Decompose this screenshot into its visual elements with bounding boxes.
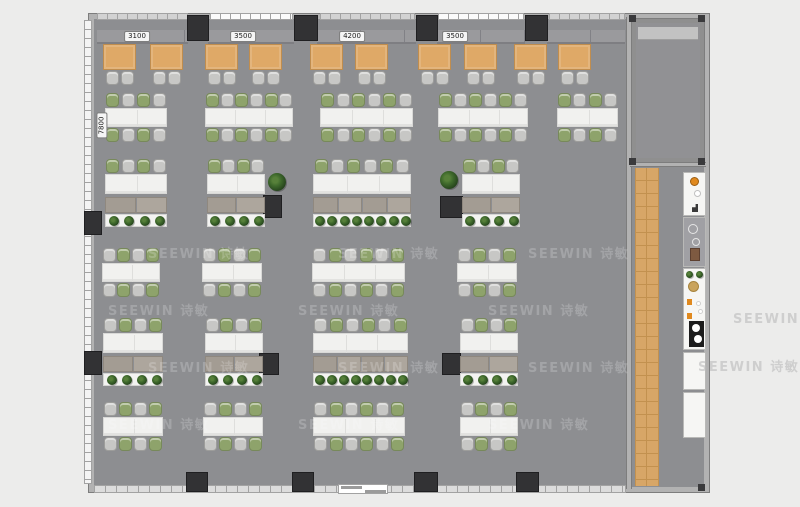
chair <box>347 159 360 173</box>
chair <box>153 93 166 107</box>
chair <box>221 128 234 142</box>
window-band-top <box>549 13 625 20</box>
chair <box>119 437 132 451</box>
chair <box>122 93 135 107</box>
planter-box <box>207 214 265 227</box>
chair <box>506 159 519 173</box>
chair <box>329 283 342 297</box>
chair <box>117 248 130 262</box>
plant <box>122 375 132 385</box>
chair <box>454 128 467 142</box>
workstation-table <box>205 333 263 353</box>
table-seam <box>383 110 384 127</box>
chair <box>208 159 221 173</box>
cafe-chair <box>561 71 574 85</box>
chair <box>344 283 357 297</box>
chair <box>352 128 365 142</box>
plant <box>386 375 396 385</box>
table-seam <box>344 265 345 282</box>
chair <box>106 159 119 173</box>
wood-floor-strip <box>635 168 659 486</box>
chair <box>375 248 388 262</box>
chair <box>360 248 373 262</box>
chair <box>604 128 617 142</box>
chair <box>250 128 263 142</box>
table-seam <box>352 110 353 127</box>
chair <box>573 128 586 142</box>
table-seam <box>233 265 234 282</box>
wall-corner-joint <box>698 15 705 22</box>
chair <box>104 402 117 416</box>
chair <box>368 128 381 142</box>
chair <box>488 283 501 297</box>
chair <box>360 402 373 416</box>
cafe-chair <box>252 71 265 85</box>
chair <box>484 93 497 107</box>
table-seam <box>469 110 470 127</box>
dimension-label: 3100 <box>124 31 150 42</box>
cafe-chair <box>328 71 341 85</box>
burner-knob <box>690 177 699 186</box>
plant <box>208 375 218 385</box>
chair <box>249 318 262 332</box>
table-seam <box>237 176 238 194</box>
structural-column <box>295 16 317 40</box>
chair <box>265 93 278 107</box>
cafe-table <box>249 44 282 70</box>
plant <box>401 216 411 226</box>
chair <box>153 159 166 173</box>
chair <box>103 248 116 262</box>
chair <box>106 128 119 142</box>
desk-unit <box>208 198 236 212</box>
chair <box>137 93 150 107</box>
dimension-label: 3500 <box>442 31 468 42</box>
cafe-chair <box>106 71 119 85</box>
chair <box>360 437 373 451</box>
desk-unit <box>363 198 387 212</box>
chair <box>383 128 396 142</box>
chair <box>279 93 292 107</box>
cafe-chair <box>576 71 589 85</box>
table-seam <box>377 335 378 353</box>
structural-column <box>187 473 207 491</box>
table-seam <box>488 265 489 282</box>
workstation-desk <box>460 356 518 372</box>
chair <box>251 159 264 173</box>
desk-unit <box>463 198 491 212</box>
burner <box>694 335 702 343</box>
cafe-table <box>205 44 238 70</box>
chair <box>132 283 145 297</box>
plant <box>352 216 362 226</box>
chair <box>313 283 326 297</box>
plant <box>507 375 517 385</box>
plant <box>492 375 502 385</box>
chair <box>233 283 246 297</box>
chair <box>458 283 471 297</box>
chair <box>329 248 342 262</box>
watermark: SEEWIN 诗敏 <box>733 308 800 327</box>
chair <box>490 318 503 332</box>
chair <box>352 93 365 107</box>
dimension-label: 3500 <box>230 31 256 42</box>
plant <box>107 375 117 385</box>
sink-round <box>688 281 699 292</box>
plant <box>315 375 325 385</box>
chair <box>345 402 358 416</box>
plant <box>362 375 372 385</box>
table-seam <box>375 419 376 436</box>
desk-unit <box>237 198 265 212</box>
structural-column <box>188 16 208 40</box>
cafe-table <box>464 44 497 70</box>
plant <box>315 216 325 226</box>
workstation-desk <box>462 197 520 213</box>
plant <box>237 375 247 385</box>
desk-unit <box>388 198 412 212</box>
workstation-table <box>462 174 520 194</box>
desk-unit <box>314 357 337 371</box>
chair <box>461 437 474 451</box>
window-band-top <box>320 13 415 20</box>
plant <box>478 375 488 385</box>
chair <box>558 93 571 107</box>
chair <box>106 93 119 107</box>
meeting-table <box>102 263 160 282</box>
plant <box>398 375 408 385</box>
chair <box>475 437 488 451</box>
chair <box>218 283 231 297</box>
faucet-icon <box>692 204 698 212</box>
planter-box <box>460 373 518 386</box>
chair <box>122 128 135 142</box>
chair <box>461 318 474 332</box>
chair <box>149 318 162 332</box>
plant <box>340 216 350 226</box>
chair <box>499 128 512 142</box>
chair <box>248 283 261 297</box>
sink-basin <box>694 190 701 197</box>
chair <box>345 437 358 451</box>
chair <box>146 283 159 297</box>
chair <box>137 128 150 142</box>
oven-box <box>690 248 700 261</box>
plant <box>686 271 693 278</box>
chair <box>206 128 219 142</box>
plant <box>268 173 286 191</box>
dimension-label: 7800 <box>96 113 107 139</box>
chair <box>391 402 404 416</box>
table-seam <box>265 110 266 127</box>
desk-unit <box>339 198 363 212</box>
chair <box>454 93 467 107</box>
fixture-ring <box>688 224 698 234</box>
chair <box>222 159 235 173</box>
cafe-chair <box>223 71 236 85</box>
planter-box <box>313 373 408 386</box>
desk-unit <box>385 357 408 371</box>
meeting-table <box>205 108 293 127</box>
chair <box>203 283 216 297</box>
table-seam <box>499 110 500 127</box>
structural-column <box>417 16 437 40</box>
meeting-table <box>557 108 618 127</box>
structural-column <box>526 16 547 40</box>
chair <box>484 128 497 142</box>
structural-column <box>85 352 101 374</box>
desk-unit <box>106 198 136 212</box>
cafe-table <box>355 44 388 70</box>
planter-box <box>105 214 167 227</box>
chair <box>504 402 517 416</box>
cafe-table <box>418 44 451 70</box>
meeting-table <box>438 108 528 127</box>
chair <box>122 159 135 173</box>
wall-corner-joint <box>698 158 705 165</box>
workstation-desk <box>313 197 411 213</box>
wood-strip-seam <box>646 168 647 486</box>
chair <box>119 402 132 416</box>
chair <box>331 159 344 173</box>
cafe-table <box>150 44 183 70</box>
cafe-chair <box>168 71 181 85</box>
table-seam <box>137 110 138 127</box>
chair <box>396 159 409 173</box>
chair <box>248 248 261 262</box>
chair <box>330 318 343 332</box>
pantry-cooktop-unit <box>683 268 706 350</box>
meeting-table <box>202 263 262 282</box>
chair <box>314 437 327 451</box>
chair <box>558 128 571 142</box>
workstation-desk <box>207 197 265 213</box>
chair <box>458 248 471 262</box>
burner <box>692 324 700 332</box>
cafe-chair <box>313 71 326 85</box>
cafe-chair <box>121 71 134 85</box>
chair <box>117 283 130 297</box>
chair <box>219 402 232 416</box>
workstation-desk <box>205 356 263 372</box>
chair <box>330 437 343 451</box>
chair <box>203 248 216 262</box>
dimension-label: 4200 <box>339 31 365 42</box>
desk-unit <box>206 357 234 371</box>
cooktop <box>689 321 704 347</box>
chair <box>221 93 234 107</box>
meeting-table <box>457 263 517 282</box>
chair <box>321 128 334 142</box>
chair <box>490 402 503 416</box>
plant <box>124 216 134 226</box>
structural-column <box>517 473 538 491</box>
wall-corner-joint <box>629 158 636 165</box>
chair <box>234 402 247 416</box>
chair <box>233 248 246 262</box>
chair <box>206 93 219 107</box>
desk-unit <box>492 198 520 212</box>
pantry-sink-unit <box>683 172 706 216</box>
window-band-top <box>210 13 293 20</box>
cafe-chair <box>358 71 371 85</box>
chair <box>589 93 602 107</box>
plant <box>327 375 337 385</box>
chair <box>439 93 452 107</box>
chair <box>220 318 233 332</box>
plant <box>155 216 165 226</box>
chair <box>314 402 327 416</box>
desk-unit <box>490 357 518 371</box>
chair <box>204 437 217 451</box>
table-seam <box>345 419 346 436</box>
structural-column <box>443 354 460 374</box>
chair <box>399 128 412 142</box>
fixture-ring <box>692 238 700 246</box>
meeting-table <box>320 108 413 127</box>
chair <box>204 402 217 416</box>
desk-unit <box>235 357 263 371</box>
cafe-chair <box>153 71 166 85</box>
chair <box>235 318 248 332</box>
chair <box>383 93 396 107</box>
chair <box>337 93 350 107</box>
meeting-room-window-band <box>638 27 698 40</box>
chair <box>344 248 357 262</box>
chair <box>153 128 166 142</box>
table-seam <box>589 110 590 127</box>
structural-column <box>85 212 101 234</box>
chair <box>514 128 527 142</box>
planter-box <box>313 214 411 227</box>
chair <box>573 93 586 107</box>
workstation-table <box>313 174 411 194</box>
chair <box>134 402 147 416</box>
chair <box>364 159 377 173</box>
planter-box <box>462 214 520 227</box>
desk-unit <box>362 357 385 371</box>
chair <box>514 93 527 107</box>
cafe-chair <box>482 71 495 85</box>
chair <box>137 159 150 173</box>
chair <box>378 318 391 332</box>
chair <box>235 93 248 107</box>
watermark: SEEWIN 诗敏 <box>698 356 799 375</box>
structural-column <box>264 196 281 217</box>
chair <box>103 283 116 297</box>
chair <box>475 318 488 332</box>
chair <box>473 248 486 262</box>
table-seam <box>132 265 133 282</box>
chair <box>380 159 393 173</box>
chair <box>399 93 412 107</box>
chair <box>463 159 476 173</box>
fixture-orange <box>687 313 692 319</box>
chair <box>146 248 159 262</box>
plant <box>225 216 235 226</box>
chair <box>490 437 503 451</box>
wall-corner-joint <box>629 15 636 22</box>
chair <box>469 128 482 142</box>
table-seam <box>235 110 236 127</box>
workstation-desk <box>313 356 408 372</box>
pantry-equipment-gray <box>683 217 706 267</box>
chair <box>149 437 162 451</box>
chair <box>360 283 373 297</box>
plant <box>339 375 349 385</box>
cafe-chair <box>267 71 280 85</box>
plant <box>696 271 703 278</box>
table-seam <box>134 419 135 436</box>
entrance-door <box>338 484 388 494</box>
chair <box>391 248 404 262</box>
desk-unit <box>461 357 489 371</box>
cafe-chair <box>208 71 221 85</box>
chair <box>119 318 132 332</box>
meeting-room <box>632 19 704 162</box>
pantry-cabinet <box>683 392 706 438</box>
table-seam <box>134 335 135 353</box>
chair <box>237 159 250 173</box>
chair <box>362 318 375 332</box>
chair <box>313 248 326 262</box>
chair <box>376 437 389 451</box>
chair <box>469 93 482 107</box>
chair <box>504 318 517 332</box>
fixture-dot <box>698 309 703 314</box>
table-seam <box>490 419 491 436</box>
meeting-table <box>203 417 263 436</box>
chair <box>391 437 404 451</box>
structural-column <box>441 197 462 217</box>
cafe-chair <box>373 71 386 85</box>
plant <box>364 216 374 226</box>
table-seam <box>137 176 138 194</box>
plant <box>252 375 262 385</box>
chair <box>375 283 388 297</box>
plant <box>109 216 119 226</box>
window-band-top <box>438 13 524 20</box>
banquette-bench <box>547 30 625 44</box>
chair <box>475 402 488 416</box>
table-seam <box>490 335 491 353</box>
floor-plan-canvas: 31003500420035007800SEEWIN 诗敏SEEWIN 诗敏SE… <box>0 0 800 507</box>
cafe-table <box>514 44 547 70</box>
cafe-table <box>310 44 343 70</box>
chair <box>504 437 517 451</box>
structural-column <box>415 473 437 491</box>
workstation-table <box>103 333 163 353</box>
workstation-table <box>207 174 265 194</box>
plant <box>494 216 504 226</box>
chair <box>368 93 381 107</box>
chair <box>589 128 602 142</box>
plant <box>440 171 458 189</box>
chair <box>376 402 389 416</box>
desk-unit <box>338 357 361 371</box>
chair <box>330 402 343 416</box>
plant <box>480 216 490 226</box>
plant <box>137 375 147 385</box>
chair <box>104 318 117 332</box>
plant <box>223 375 233 385</box>
chair <box>249 402 262 416</box>
cafe-chair <box>532 71 545 85</box>
plant <box>463 375 473 385</box>
chair <box>346 318 359 332</box>
door-panel <box>365 490 386 493</box>
fixture-orange <box>687 299 692 305</box>
